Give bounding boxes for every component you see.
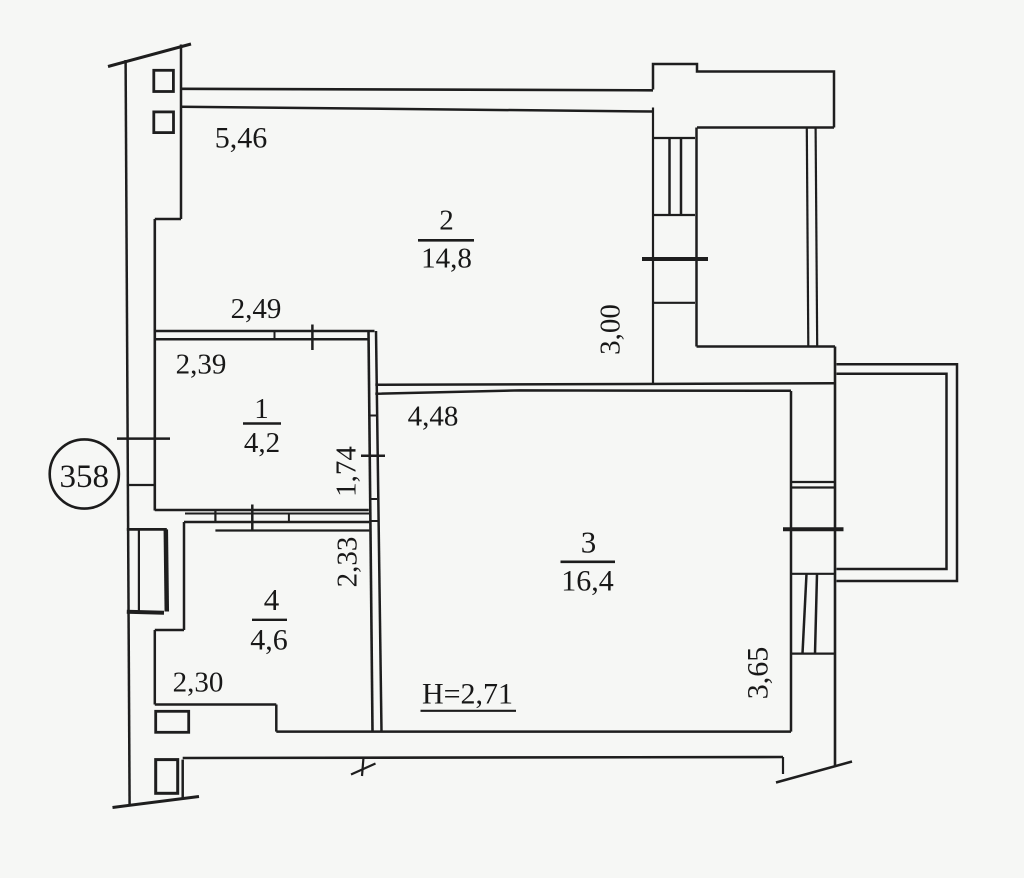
svg-text:2,39: 2,39	[176, 349, 227, 381]
svg-text:4,2: 4,2	[244, 427, 280, 459]
svg-text:4: 4	[264, 582, 280, 617]
svg-text:2,49: 2,49	[231, 293, 282, 325]
svg-text:2,33: 2,33	[332, 537, 364, 588]
svg-text:2,30: 2,30	[173, 667, 224, 699]
svg-text:14,8: 14,8	[421, 243, 472, 275]
svg-text:1: 1	[254, 393, 269, 425]
svg-text:1,74: 1,74	[331, 446, 363, 497]
svg-text:4,48: 4,48	[408, 401, 459, 433]
svg-text:3,65: 3,65	[742, 647, 775, 700]
svg-text:5,46: 5,46	[215, 122, 268, 155]
svg-text:4,6: 4,6	[250, 624, 288, 657]
svg-text:3: 3	[581, 525, 597, 560]
svg-text:2: 2	[439, 205, 454, 237]
svg-text:358: 358	[60, 459, 110, 495]
svg-text:3,00: 3,00	[595, 304, 627, 355]
svg-text:16,4: 16,4	[561, 565, 614, 598]
svg-text:H=2,71: H=2,71	[422, 678, 513, 711]
